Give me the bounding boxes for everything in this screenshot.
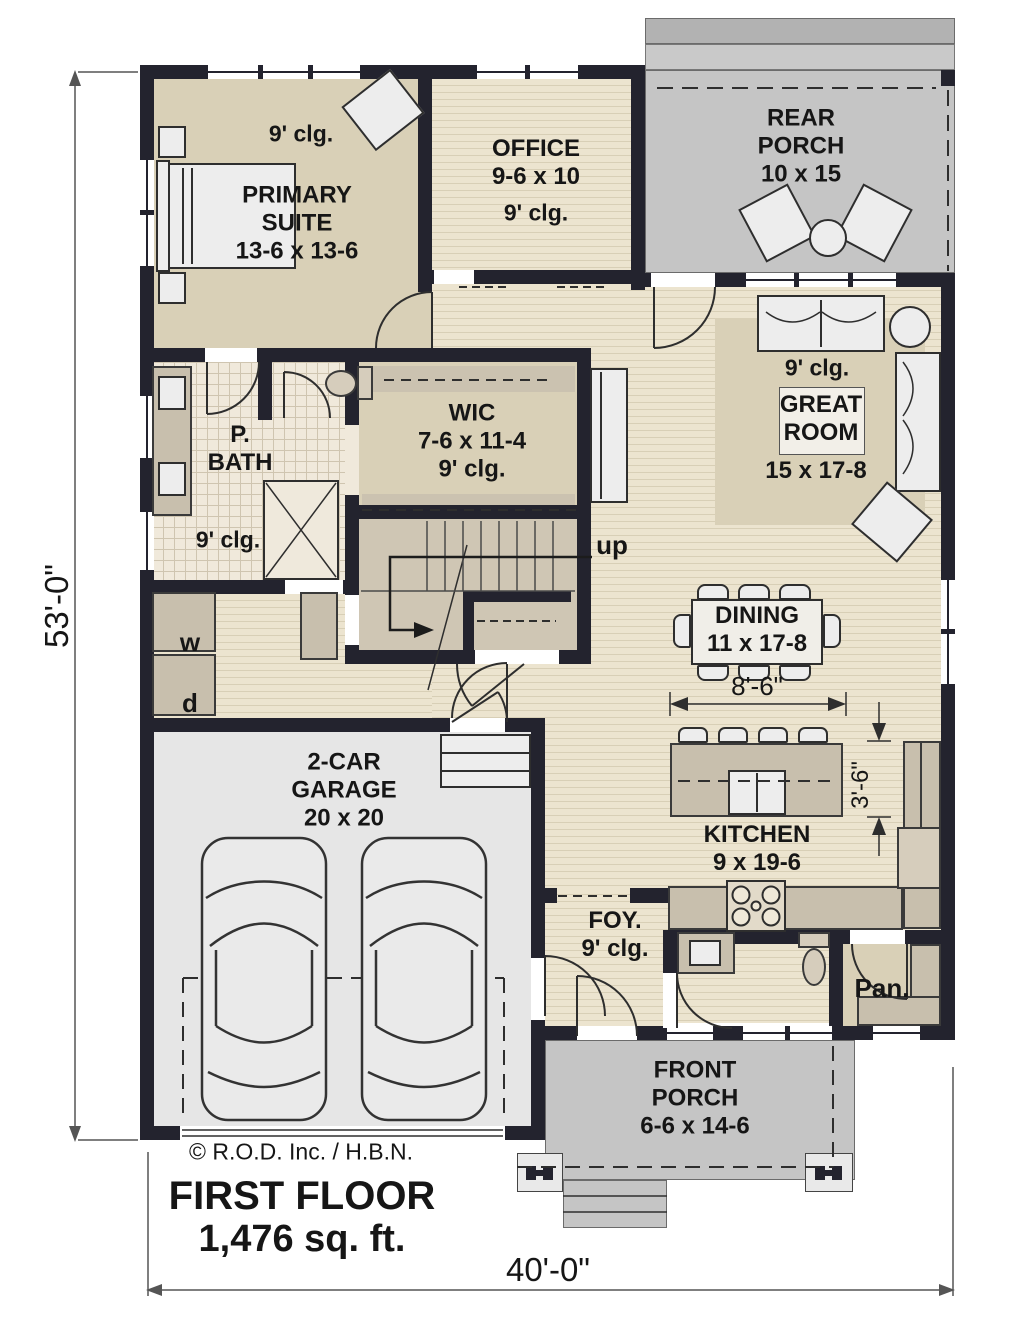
wall — [463, 591, 474, 664]
rear-porch-roof-band2 — [645, 44, 955, 70]
wall — [418, 65, 432, 292]
rear-porch-roof-band — [645, 18, 955, 44]
wic-label: WIC 7-6 x 11-4 9' clg. — [418, 399, 526, 482]
plan-title: FIRST FLOOR — [169, 1173, 436, 1219]
overall-width-dim: 40'-0" — [506, 1251, 590, 1289]
shower — [263, 480, 339, 580]
door-opening — [850, 930, 905, 944]
nightstand — [158, 272, 186, 304]
wall — [630, 888, 670, 903]
dining-chair — [697, 665, 729, 681]
post-icon — [534, 1170, 545, 1176]
garage-shelves — [440, 734, 531, 788]
toilet-bowl — [325, 370, 357, 397]
door-opening — [663, 973, 677, 1028]
bed-pillow-line — [182, 168, 184, 264]
half-bath-sink — [689, 940, 721, 966]
primary-bath-ceiling-label: 9' clg. — [196, 527, 260, 554]
dining-clearance-dim: 8'-6" — [731, 671, 783, 701]
shelf-line — [442, 770, 529, 772]
dining-chair — [738, 584, 770, 600]
dining-chair — [697, 584, 729, 600]
door-opening — [434, 270, 474, 284]
wall — [631, 65, 645, 290]
island-stool — [678, 727, 708, 743]
bed-pillow-line — [191, 168, 193, 264]
wall — [345, 505, 591, 519]
wall — [463, 591, 571, 602]
porch-table — [809, 219, 847, 257]
window — [873, 1026, 920, 1040]
door-opening — [205, 348, 257, 362]
wall — [941, 70, 955, 86]
door-opening — [345, 425, 359, 495]
sink-divider — [756, 773, 758, 812]
counter-divider — [920, 743, 922, 827]
door-opening — [450, 718, 505, 732]
window — [140, 512, 154, 570]
window — [746, 273, 896, 287]
sofa-divider — [820, 300, 822, 347]
kitchen-label: KITCHEN 9 x 19-6 — [704, 821, 811, 877]
island-clearance-dim: 3'-6" — [847, 761, 875, 809]
front-porch-steps — [563, 1180, 667, 1228]
dining-chair — [779, 584, 811, 600]
cabinet-line — [600, 372, 602, 499]
dining-chair — [673, 614, 691, 648]
floor-plan: 9' clg. PRIMARY SUITE 13-6 x 13-6 OFFICE… — [0, 0, 1024, 1327]
island-stool — [798, 727, 828, 743]
bath-sink — [158, 462, 186, 496]
office-label: OFFICE 9-6 x 10 — [492, 135, 580, 191]
primary-suite-label: PRIMARY SUITE 13-6 x 13-6 — [236, 181, 359, 264]
door-opening — [651, 273, 715, 287]
foyer-label: FOY. 9' clg. — [581, 907, 648, 963]
office-ceiling-label: 9' clg. — [504, 200, 568, 227]
wall — [531, 732, 545, 1126]
copyright-text: © R.O.D. Inc. / H.B.N. — [189, 1139, 413, 1166]
side-table — [889, 306, 931, 348]
overall-depth-dim: 53'-0" — [38, 564, 76, 648]
stairs-up-label: up — [596, 530, 628, 560]
window-mullion — [525, 65, 530, 79]
wall — [577, 348, 591, 519]
built-in-cabinet — [590, 368, 628, 503]
window-mullion — [308, 65, 313, 79]
window — [667, 1026, 713, 1040]
wall — [258, 362, 272, 420]
window-mullion — [848, 273, 853, 287]
dining-chair — [779, 665, 811, 681]
island-stool — [718, 727, 748, 743]
window-mullion — [140, 210, 154, 215]
window — [208, 65, 360, 79]
door-opening — [345, 595, 359, 645]
primary-suite-ceiling-label: 9' clg. — [269, 121, 333, 148]
great-room-label: GREAT ROOM — [780, 391, 862, 447]
pantry-label: Pan. — [855, 973, 910, 1003]
toilet-tank — [357, 366, 373, 400]
door-opening — [531, 958, 545, 1020]
post-icon — [823, 1170, 834, 1176]
washer-label: w — [180, 627, 200, 657]
shelf-line — [442, 752, 529, 754]
nightstand — [158, 126, 186, 158]
island-stool — [758, 727, 788, 743]
rear-porch-label: REAR PORCH 10 x 15 — [758, 104, 845, 187]
plan-area: 1,476 sq. ft. — [199, 1217, 406, 1261]
window-mullion — [258, 65, 263, 79]
primary-bath-label: P. BATH — [208, 421, 273, 477]
wall — [577, 519, 591, 664]
door-opening — [475, 650, 559, 664]
dryer-label: d — [182, 688, 198, 718]
great-room-dims: 15 x 17-8 — [765, 457, 866, 485]
dining-chair — [823, 614, 841, 648]
wic-shelf-top — [362, 366, 575, 392]
dining-label: DINING 11 x 17-8 — [707, 602, 807, 658]
window-mullion — [794, 273, 799, 287]
great-room-ceiling-label: 9' clg. — [785, 355, 849, 382]
loveseat — [895, 352, 941, 492]
mud-bench — [300, 592, 338, 660]
fridge — [897, 827, 941, 889]
garage-label: 2-CAR GARAGE 20 x 20 — [291, 748, 396, 831]
toilet-tank — [798, 932, 830, 948]
window-mullion — [941, 629, 955, 634]
wall — [531, 888, 557, 903]
window-mullion — [785, 1026, 790, 1040]
toilet-bowl — [802, 948, 826, 986]
bath-sink — [158, 376, 186, 410]
door-opening — [577, 1026, 637, 1040]
range — [726, 880, 786, 932]
front-porch-label: FRONT PORCH 6-6 x 14-6 — [640, 1056, 749, 1139]
